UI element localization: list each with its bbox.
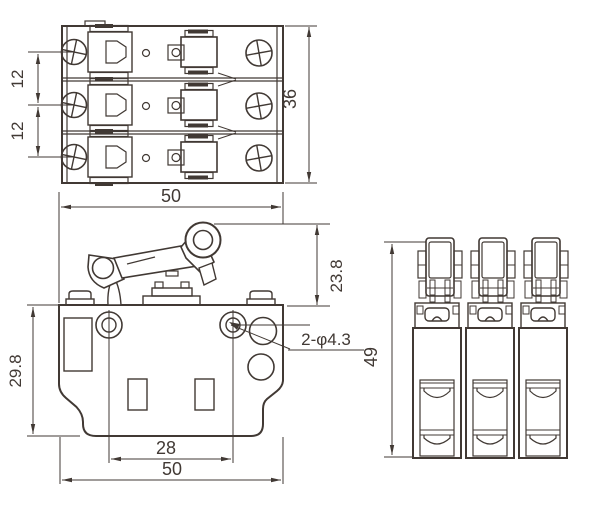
top-view: 12 12 36 [8, 21, 317, 186]
dim-front-width-top: 50 [59, 186, 283, 303]
dim-hole-spacing: 28 [111, 438, 231, 461]
dim-label-23-8: 23.8 [327, 259, 346, 292]
technical-drawing-page: 12 12 36 50 [0, 0, 600, 514]
limit-switch-drawing: 12 12 36 50 [0, 0, 600, 514]
dim-top-height: 36 [280, 26, 317, 183]
dim-label-28: 28 [156, 438, 176, 458]
dim-terminal-pitch: 12 12 [8, 52, 74, 157]
cover-screw-boss-right [247, 291, 275, 305]
fork-tab [199, 263, 216, 285]
dim-lever-height: 23.8 [214, 224, 346, 306]
front-view: 50 [6, 186, 364, 484]
dim-label-36: 36 [280, 89, 300, 109]
roller [186, 223, 221, 258]
dim-label-50-top: 50 [161, 186, 181, 206]
dim-label-29-8: 29.8 [6, 354, 25, 387]
dim-label-49: 49 [361, 347, 381, 367]
holes-callout-label: 2-φ4.3 [301, 330, 351, 349]
plunger-pedestal [143, 271, 200, 305]
pivot-hole [93, 258, 114, 279]
roller-lever [88, 223, 221, 289]
dim-side-height: 49 [361, 242, 426, 457]
dim-label-pitch-b: 12 [8, 122, 27, 141]
side-view: 49 [361, 238, 568, 458]
cover-screw-boss-left [66, 291, 94, 305]
dim-label-pitch-a: 12 [8, 70, 27, 89]
dim-label-50-bottom: 50 [162, 459, 182, 479]
